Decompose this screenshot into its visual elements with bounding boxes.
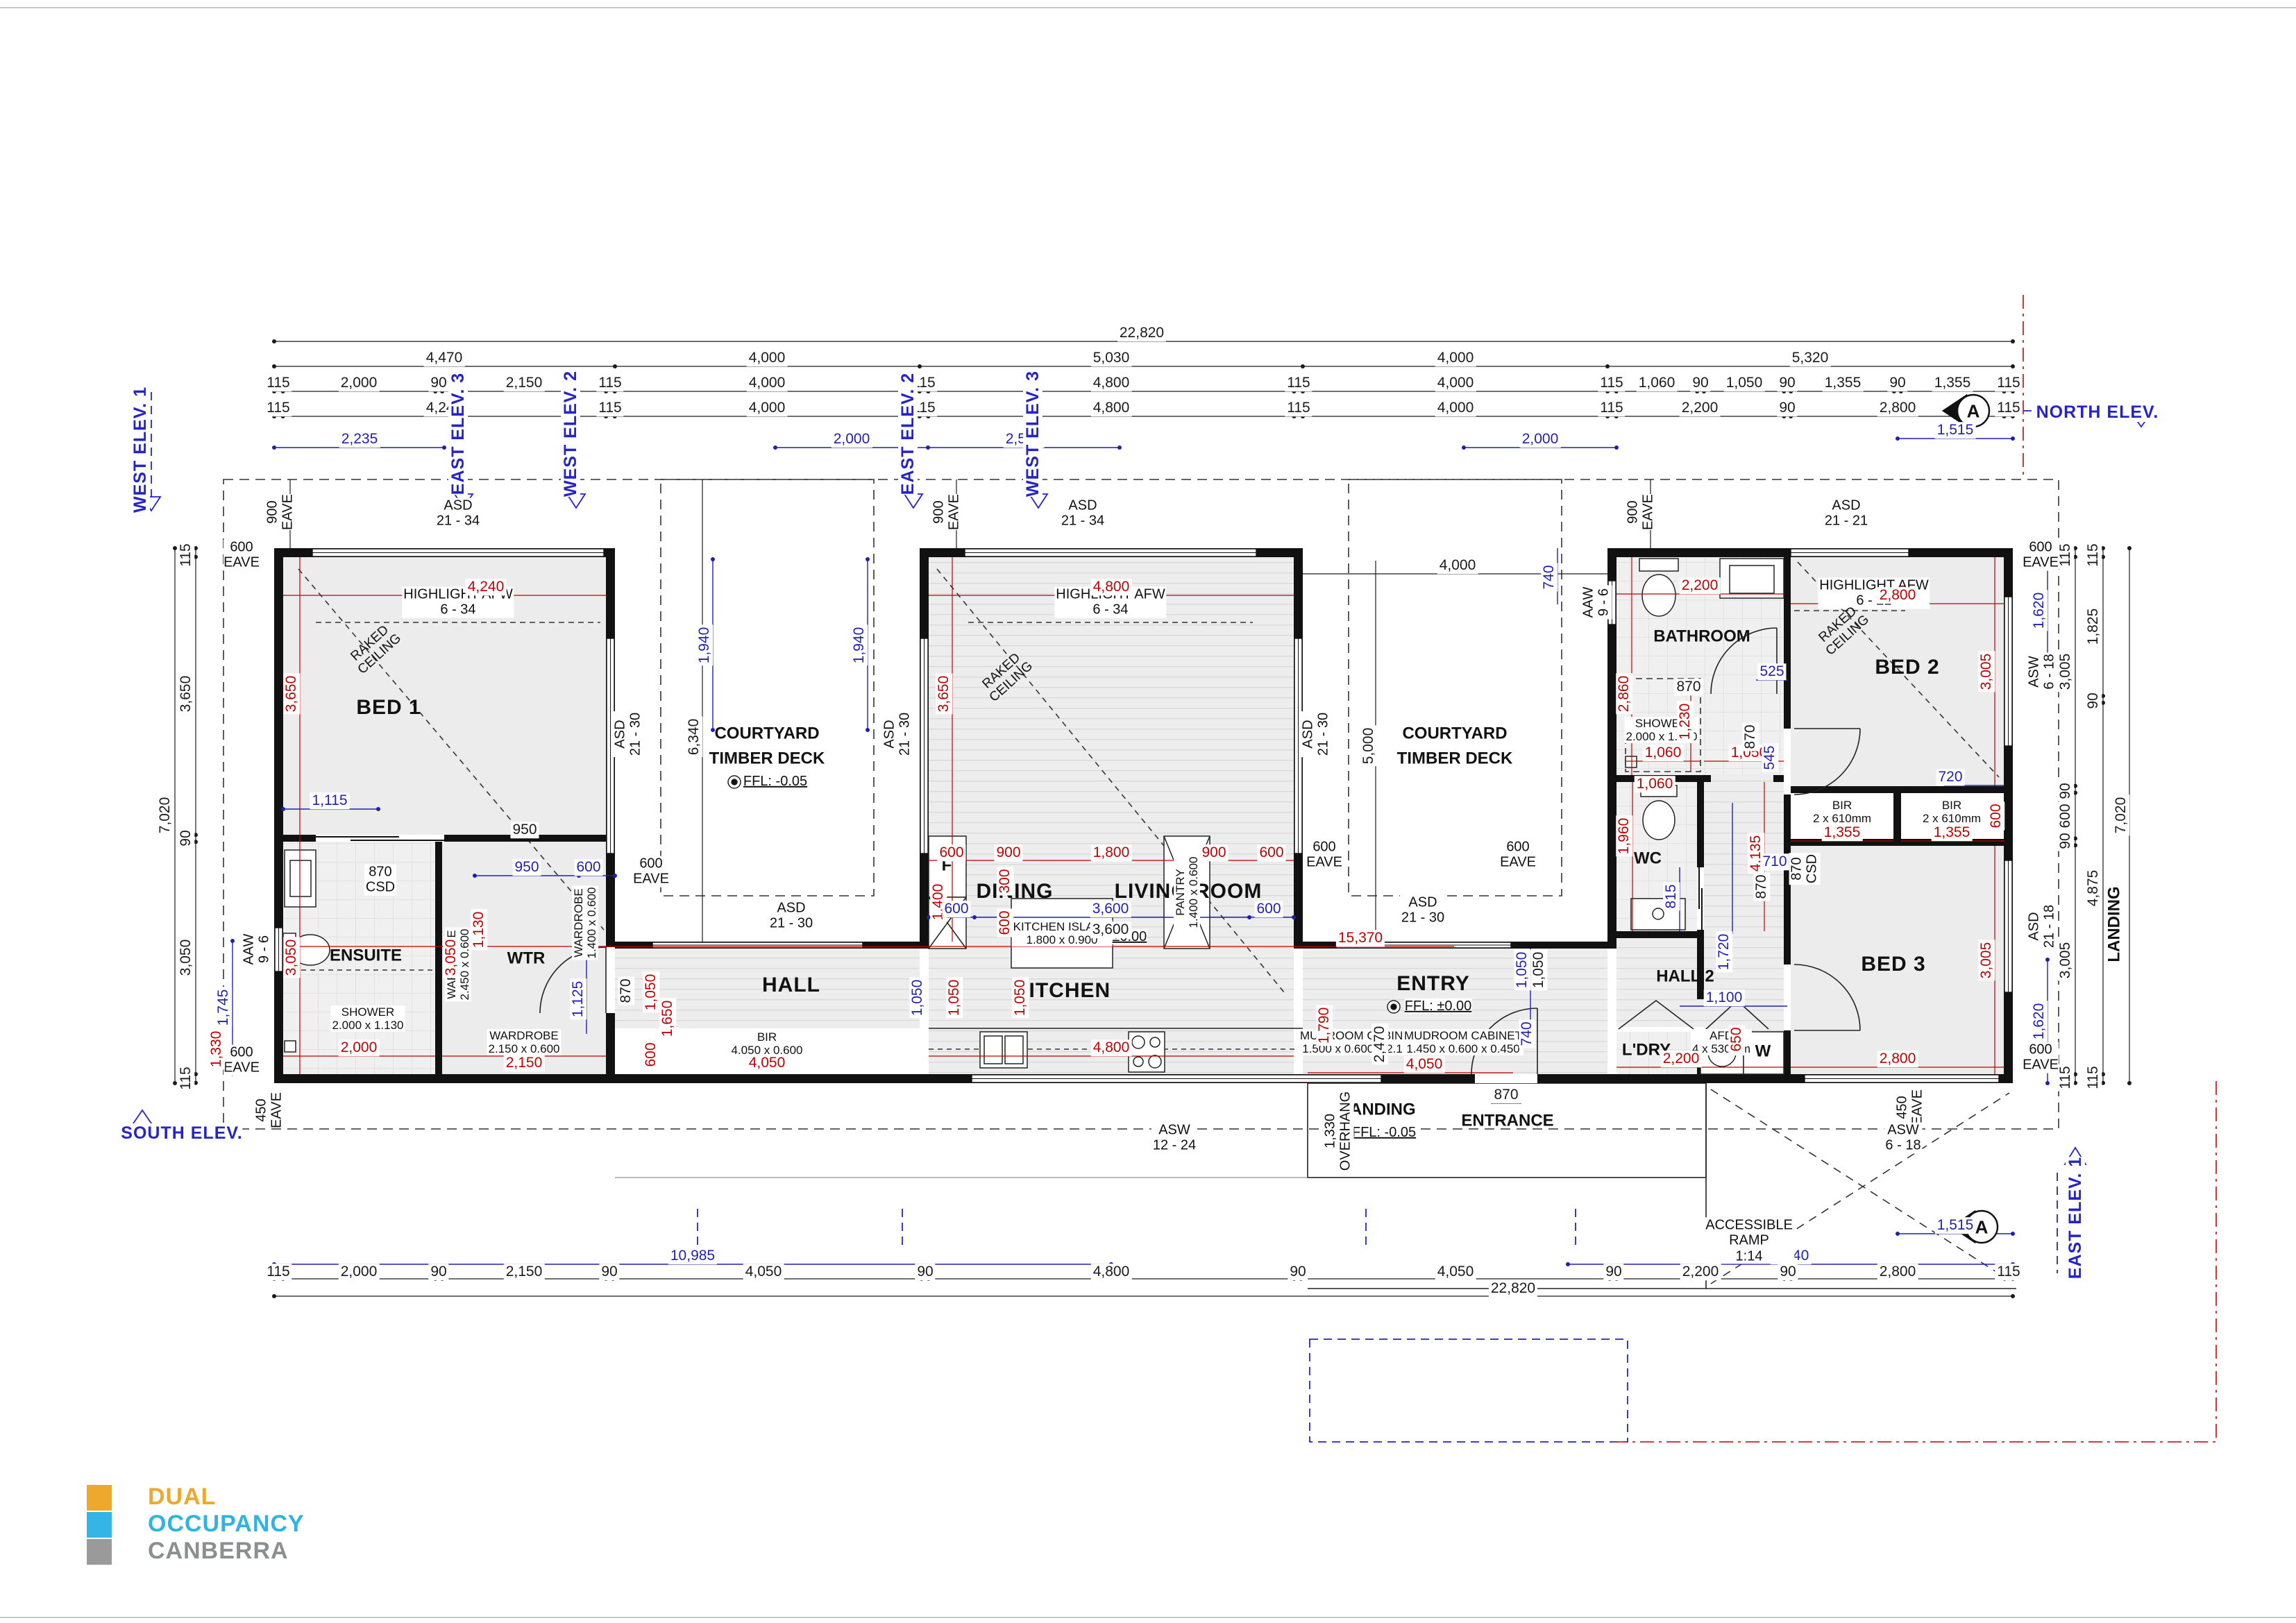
dim-label: 3,050 [178, 937, 194, 978]
dim-label-blue: 740 [1541, 563, 1558, 591]
dim-label-blue: 1,620 [2031, 590, 2048, 631]
dim-label-red: 2,150 [504, 1055, 545, 1071]
dim-label-red: 1,355 [1932, 824, 1973, 841]
elev-east-2: EAST ELEV. 2 [898, 373, 918, 495]
dim-label: 115 [2057, 541, 2074, 568]
window-code: ASD 21 - 30 [1400, 895, 1446, 926]
dim-label: 4,000 [1437, 557, 1478, 574]
joinery-label: WARDROBE 2.150 x 0.600 [487, 1029, 561, 1055]
dim-label: 5,320 [1790, 350, 1831, 366]
room-bed2: BED 2 [1875, 656, 1939, 679]
window-code: 870 CSD [364, 865, 396, 896]
dim-label-red: 600 [1988, 801, 2004, 830]
dim-label: 870 [1742, 722, 1759, 751]
dim-label: 4,800 [1091, 1264, 1132, 1280]
logo-square-orange [87, 1485, 112, 1511]
logo-square-blue [87, 1512, 112, 1538]
room-courtyard1: COURTYARD [714, 725, 819, 744]
window-code: ASD 21 - 18 [2027, 903, 2058, 949]
dim-label: 2,000 [339, 375, 380, 391]
dim-label: 90 [1777, 400, 1797, 416]
dim-label: 115 [2085, 541, 2102, 568]
dim-label-red: 1,130 [471, 910, 487, 951]
dim-label: 4,000 [747, 375, 788, 391]
dim-label: 7,020 [157, 795, 174, 836]
dim-label-blue: 1,115 [310, 792, 350, 809]
logo-text-canberra: CANBERRA [148, 1538, 289, 1565]
window-code: ASD 21 - 30 [768, 901, 814, 932]
dim-label: 4,000 [747, 400, 788, 416]
joinery-label: BIR 4.050 x 0.600 [729, 1030, 804, 1057]
dim-label: 870 [1753, 872, 1770, 901]
section-marker-a-top: A [1967, 401, 1980, 421]
dim-label: 4,050 [743, 1264, 784, 1280]
dim-label: 90 [178, 828, 194, 848]
dim-label: 3,005 [2057, 652, 2074, 692]
dim-label: 2,000 [339, 1264, 380, 1280]
dim-label-red: 1,050 [946, 978, 963, 1019]
dim-label: 115 [178, 1064, 194, 1091]
window-code: ASD 21 - 34 [435, 498, 481, 529]
dim-label: 1,355 [1823, 375, 1864, 391]
dim-label-blue: 2,235 [339, 431, 380, 448]
eave-label: 600 EAVE [223, 1045, 260, 1076]
window-code: ASD 21 - 30 [1301, 711, 1332, 757]
window-code: ASD 21 - 30 [613, 711, 644, 757]
dim-label-red: 1,050 [643, 972, 659, 1013]
joinery-label: PANTRY 1.400 x 0.600 [1174, 855, 1200, 929]
dim-label: 4,470 [424, 350, 465, 366]
eave-label: 600 EAVE [2023, 1042, 2059, 1073]
room-ensuite: ENSUITE [330, 947, 402, 966]
dim-label-blue: 1,125 [570, 979, 586, 1020]
logo-text-occupancy: OCCUPANCY [148, 1511, 305, 1538]
dim-label-red: 1,060 [1635, 776, 1675, 792]
dim-label: 115 [1285, 375, 1312, 391]
dim-label: 90 [2057, 831, 2074, 851]
ceiling-note: RAKED CEILING [977, 648, 1036, 705]
eave-label: 450 EAVE [254, 1092, 285, 1128]
window-code: AAW 9 - 6 [242, 933, 273, 967]
dim-label-red: 3,005 [1978, 652, 1995, 692]
ffl-label: FFL: -0.05 [1352, 1125, 1416, 1140]
dim-label: 6,340 [686, 717, 702, 758]
dim-label-red: 600 [997, 908, 1013, 937]
dim-label-blue: 1,515 [1935, 422, 1976, 439]
dim-label: 115 [264, 375, 292, 391]
dim-label-red: 1,060 [1643, 745, 1684, 761]
dim-label-red: 1,650 [659, 999, 676, 1039]
window-code: ASW 6 - 18 [2027, 652, 2058, 690]
dim-label: 4,800 [1091, 375, 1132, 391]
dim-label: 2,470 [1371, 1024, 1388, 1065]
dim-label-red: 4,050 [747, 1055, 788, 1071]
eave-label: 600 EAVE [223, 540, 260, 571]
dim-label: 4,000 [1435, 375, 1476, 391]
dim-label-red: 15,370 [1336, 930, 1385, 946]
label-entrance: ENTRANCE [1461, 1112, 1553, 1131]
logo-square-gray [87, 1539, 112, 1565]
dim-label-red: 4,800 [1091, 579, 1132, 595]
dim-label: 90 [2057, 781, 2074, 801]
joinery-label: BIR 2 x 610mm [1812, 799, 1873, 825]
window-code: ASW 6 - 18 [1884, 1123, 1922, 1154]
dim-label-blue: 1,940 [851, 625, 868, 666]
dim-label: 4,050 [1435, 1264, 1476, 1280]
dim-label-red: 1,960 [1616, 816, 1632, 857]
elev-west-1: WEST ELEV. 1 [130, 386, 150, 513]
dim-label-blue: 815 [1663, 882, 1680, 910]
dim-label: 2,200 [1680, 400, 1721, 416]
dim-label-red: 300 [997, 867, 1013, 895]
dim-label-red: 900 [1199, 844, 1228, 861]
dim-label-blue: 1,515 [1935, 1217, 1976, 1234]
room-bed3: BED 3 [1861, 953, 1925, 976]
eave-label: 450 EAVE [1895, 1089, 1926, 1125]
dim-label-red: 1,790 [1316, 1005, 1333, 1046]
dim-label-blue: 525 [1757, 663, 1786, 680]
room-wtr: WTR [507, 950, 546, 969]
dim-label: 90 [1603, 1264, 1623, 1280]
eave-label: 600 EAVE [2023, 540, 2059, 571]
dim-label: 115 [264, 1264, 292, 1280]
window-code: ASW 12 - 24 [1151, 1123, 1197, 1154]
elev-east-1: EAST ELEV. 1 [2066, 1157, 2085, 1279]
window-code: ACCESSIBLE RAMP 1:14 [1704, 1217, 1794, 1264]
dim-label: 870 [1674, 679, 1703, 695]
dim-label-red: 2,800 [1877, 587, 1918, 604]
dim-label-red: 4,050 [1404, 1056, 1445, 1073]
dim-label: 22,820 [1489, 1280, 1537, 1297]
dim-label-blue: 2,000 [832, 431, 872, 448]
dim-label: 115 [264, 400, 292, 416]
dim-label-red: 3,005 [1978, 940, 1995, 981]
ffl-label: FFL: -0.05 [743, 774, 807, 789]
joinery-label: BIR 2 x 610mm [1921, 799, 1982, 825]
dim-label: 115 [596, 375, 623, 391]
dim-label-red: 600 [937, 844, 965, 861]
dim-label-blue: 545 [1762, 743, 1778, 772]
room-hall: HALL [762, 974, 820, 997]
dim-label: 3,005 [2057, 940, 2074, 981]
room-entry: ENTRY [1396, 972, 1470, 996]
dim-label-red: 1,050 [1012, 978, 1029, 1019]
dim-label-red: 3,050 [443, 937, 459, 978]
room-hall2: HALL 2 [1656, 968, 1714, 987]
joinery-label: WARDROBE 1.400 x 0.600 [572, 885, 598, 960]
dim-label-blue: 1,100 [1704, 989, 1745, 1006]
dim-label: 4,000 [1435, 350, 1476, 366]
room-courtyard2: COURTYARD [1402, 725, 1507, 744]
dim-label: 2,800 [1877, 400, 1918, 416]
elev-east-3: EAST ELEV. 3 [448, 373, 468, 495]
dim-label: 90 [915, 1264, 935, 1280]
annotation-layer: 22,8204,4704,0005,0304,0005,3201152,0009… [0, 0, 2296, 1623]
elev-west-3: WEST ELEV. 3 [1023, 371, 1043, 497]
dim-label: 950 [510, 822, 539, 838]
dim-label: 90 [2085, 690, 2102, 711]
room-bathroom: BATHROOM [1653, 628, 1750, 647]
dim-label-red: 3,650 [936, 674, 952, 715]
dim-label: 115 [2057, 1064, 2074, 1091]
dim-label-red: 2,000 [339, 1039, 380, 1056]
floor-plan-sheet: 22,8204,4704,0005,0304,0005,3201152,0009… [0, 0, 2296, 1623]
joinery-label: MUDROOM CABINET 1.450 x 0.600 x 0.450 [1403, 1029, 1523, 1055]
dim-label: 4,800 [1091, 400, 1132, 416]
dim-label-blue: 1,050 [909, 978, 926, 1019]
dim-label: 115 [596, 400, 623, 416]
dim-label: 1,060 [1637, 375, 1678, 391]
window-code: 870 CSD [1789, 853, 1821, 885]
dim-label: 90 [428, 1264, 448, 1280]
eave-label: 600 EAVE [633, 856, 669, 887]
dim-label-red: 2,860 [1616, 674, 1632, 715]
dim-label: 5,030 [1091, 350, 1132, 366]
dim-label: 870 [618, 976, 634, 1005]
room-label: W [1755, 1043, 1771, 1062]
dim-label: 2,150 [504, 375, 545, 391]
dim-label-red: 650 [1728, 1025, 1745, 1053]
ceiling-note: RAKED CEILING [346, 620, 405, 677]
dim-label: 90 [428, 375, 448, 391]
dim-label-blue: 10,985 [668, 1248, 717, 1264]
dim-label-red: 2,200 [1680, 577, 1721, 594]
dim-label: 1,825 [2085, 606, 2102, 647]
eave-label: 900 EAVE [265, 494, 296, 530]
dim-label: 115 [1995, 1264, 2022, 1280]
dim-label-blue: 1,620 [2031, 1001, 2048, 1042]
room-bed1: BED 1 [356, 696, 421, 720]
dim-label: 5,000 [1360, 726, 1377, 767]
dim-label-blue: 3,600 [1090, 901, 1131, 917]
dim-label-red: 1,330 [208, 1029, 225, 1070]
ceiling-note: RAKED CEILING [1814, 602, 1873, 658]
dim-label: 2,200 [1680, 1264, 1721, 1280]
dim-label-red: 3,650 [283, 674, 300, 715]
dim-label-blue: 600 [1254, 901, 1283, 917]
dim-label: 22,820 [1117, 325, 1166, 341]
dim-label: 2,150 [504, 1264, 545, 1280]
dim-label: 90 [1887, 375, 1907, 391]
window-code: ASD 21 - 34 [1060, 498, 1106, 529]
dim-label-red: 2,200 [1661, 1051, 1702, 1067]
dim-label-red: 1,800 [1091, 844, 1132, 861]
eave-label: 900 EAVE [1626, 494, 1657, 530]
dim-label-red: 2,800 [1877, 1051, 1918, 1067]
ffl-label: FFL: ±0.00 [1405, 999, 1472, 1014]
dim-label: 90 [599, 1264, 619, 1280]
dim-label-blue: 1,720 [1716, 932, 1732, 973]
section-marker-a-bottom: A [1975, 1217, 1989, 1237]
room-dining: DINING [977, 880, 1054, 903]
dim-label: 90 [1288, 1264, 1308, 1280]
dim-label-blue: 1,745 [215, 987, 232, 1028]
logo-text-dual: DUAL [148, 1484, 216, 1511]
dim-label-blue: 1,940 [696, 625, 713, 666]
dim-label-blue: 600 [574, 859, 602, 876]
dim-label: 90 [1777, 375, 1797, 391]
dim-label: 600 [2057, 801, 2074, 830]
dim-label: 1,050 [1724, 375, 1765, 391]
dim-label: 115 [1995, 375, 2022, 391]
dim-label-blue: 740 [1519, 1019, 1535, 1048]
window-code: AAW 9 - 6 [1581, 586, 1612, 620]
dim-label-red: 4,800 [1091, 1039, 1132, 1056]
room-landing-side: LANDING [2106, 886, 2125, 962]
dim-label: 1,355 [1932, 375, 1973, 391]
dim-label-blue: 950 [512, 859, 541, 876]
dim-label: 115 [1995, 400, 2022, 416]
dim-label-red: 1,355 [1822, 824, 1863, 841]
dim-label-red: 900 [994, 844, 1022, 861]
dim-label: 90 [1778, 1264, 1798, 1280]
dim-label-blue: 2,000 [1520, 431, 1561, 448]
eave-label: 900 EAVE [931, 494, 963, 530]
eave-label: 600 EAVE [1500, 840, 1536, 871]
dim-label-red: 3,050 [283, 937, 300, 978]
dim-label-red: 600 [643, 1040, 659, 1069]
eave-label: 1,330 OVERHANG [1323, 1091, 1354, 1171]
window-code: ASD 21 - 30 [882, 711, 913, 757]
dim-label: 3,650 [178, 674, 194, 715]
dim-label: 2,800 [1877, 1264, 1918, 1280]
dim-label-blue: 720 [1936, 769, 1964, 785]
dim-label-red: 1,230 [1677, 702, 1694, 742]
eave-label: 600 EAVE [1306, 840, 1342, 871]
dim-label: 7,020 [2113, 795, 2129, 836]
dim-label: 1,050 [1530, 950, 1547, 991]
window-code: ASD 21 - 21 [1823, 498, 1869, 529]
dim-label: 4,000 [1435, 400, 1476, 416]
dim-label-blue: 600 [942, 901, 970, 917]
dim-label: 115 [2085, 1064, 2102, 1091]
dim-label: 4,000 [747, 350, 788, 366]
dim-label: 115 [1285, 400, 1312, 416]
dim-label-red: 4,240 [466, 579, 507, 595]
room-label: TIMBER DECK [1397, 750, 1513, 769]
dim-label: 870 [1492, 1087, 1520, 1103]
elev-south: SOUTH ELEV. [121, 1123, 242, 1143]
dim-label: 115 [1598, 375, 1625, 391]
dim-label-red: 600 [1257, 844, 1285, 861]
dim-label: 90 [1690, 375, 1710, 391]
room-wc: WC [1634, 850, 1662, 869]
dim-label-blue: 710 [1760, 853, 1789, 870]
dim-label-blue: 1,050 [1514, 950, 1530, 991]
room-label: TIMBER DECK [709, 750, 825, 769]
elev-west-2: WEST ELEV. 2 [561, 371, 580, 497]
dim-label: 3,600 [1090, 921, 1131, 938]
elev-north: NORTH ELEV. [2036, 402, 2159, 422]
dim-label: 115 [1598, 400, 1625, 416]
joinery-label: SHOWER 2.000 x 1.130 [330, 1005, 405, 1032]
dim-label: 4,875 [2085, 868, 2102, 909]
dim-label: 115 [178, 541, 194, 568]
